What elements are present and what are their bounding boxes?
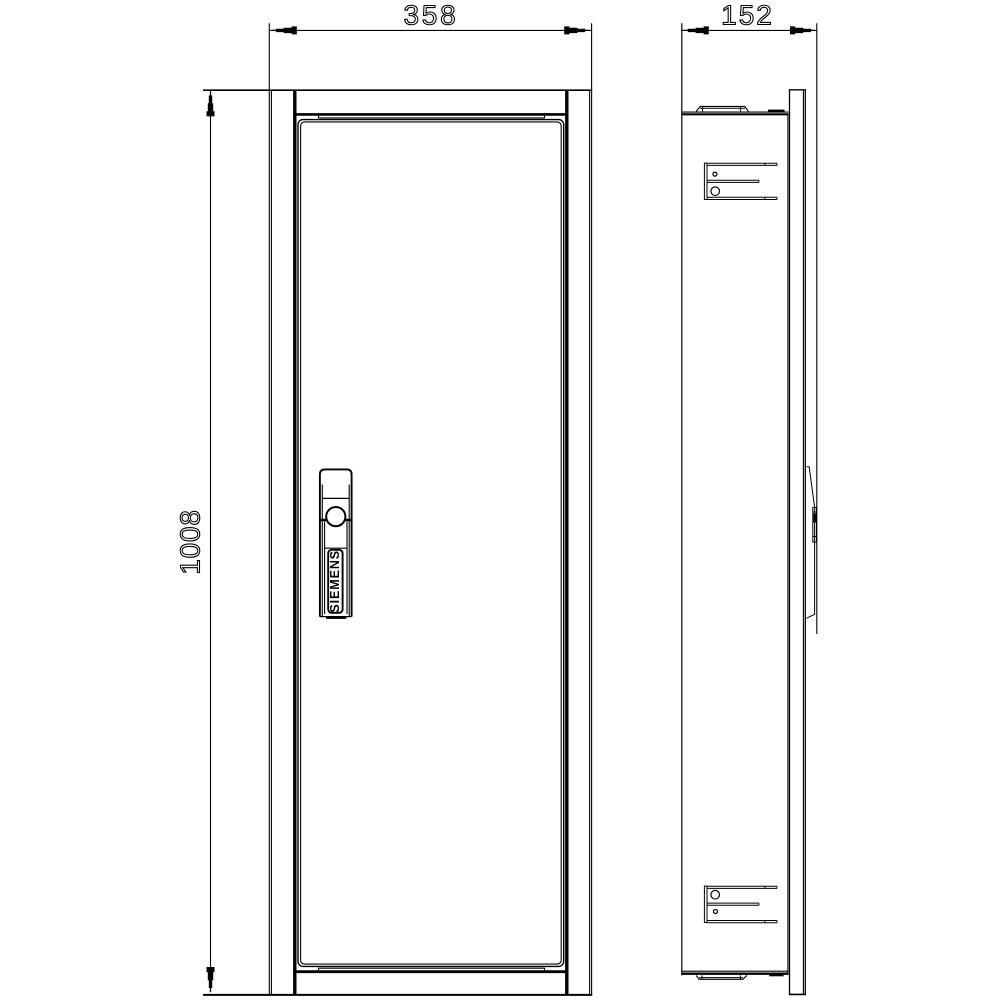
svg-text:SIEMENS: SIEMENS [328, 550, 342, 613]
svg-text:1008: 1008 [175, 509, 206, 575]
svg-text:358: 358 [403, 0, 458, 31]
svg-text:152: 152 [721, 0, 774, 31]
